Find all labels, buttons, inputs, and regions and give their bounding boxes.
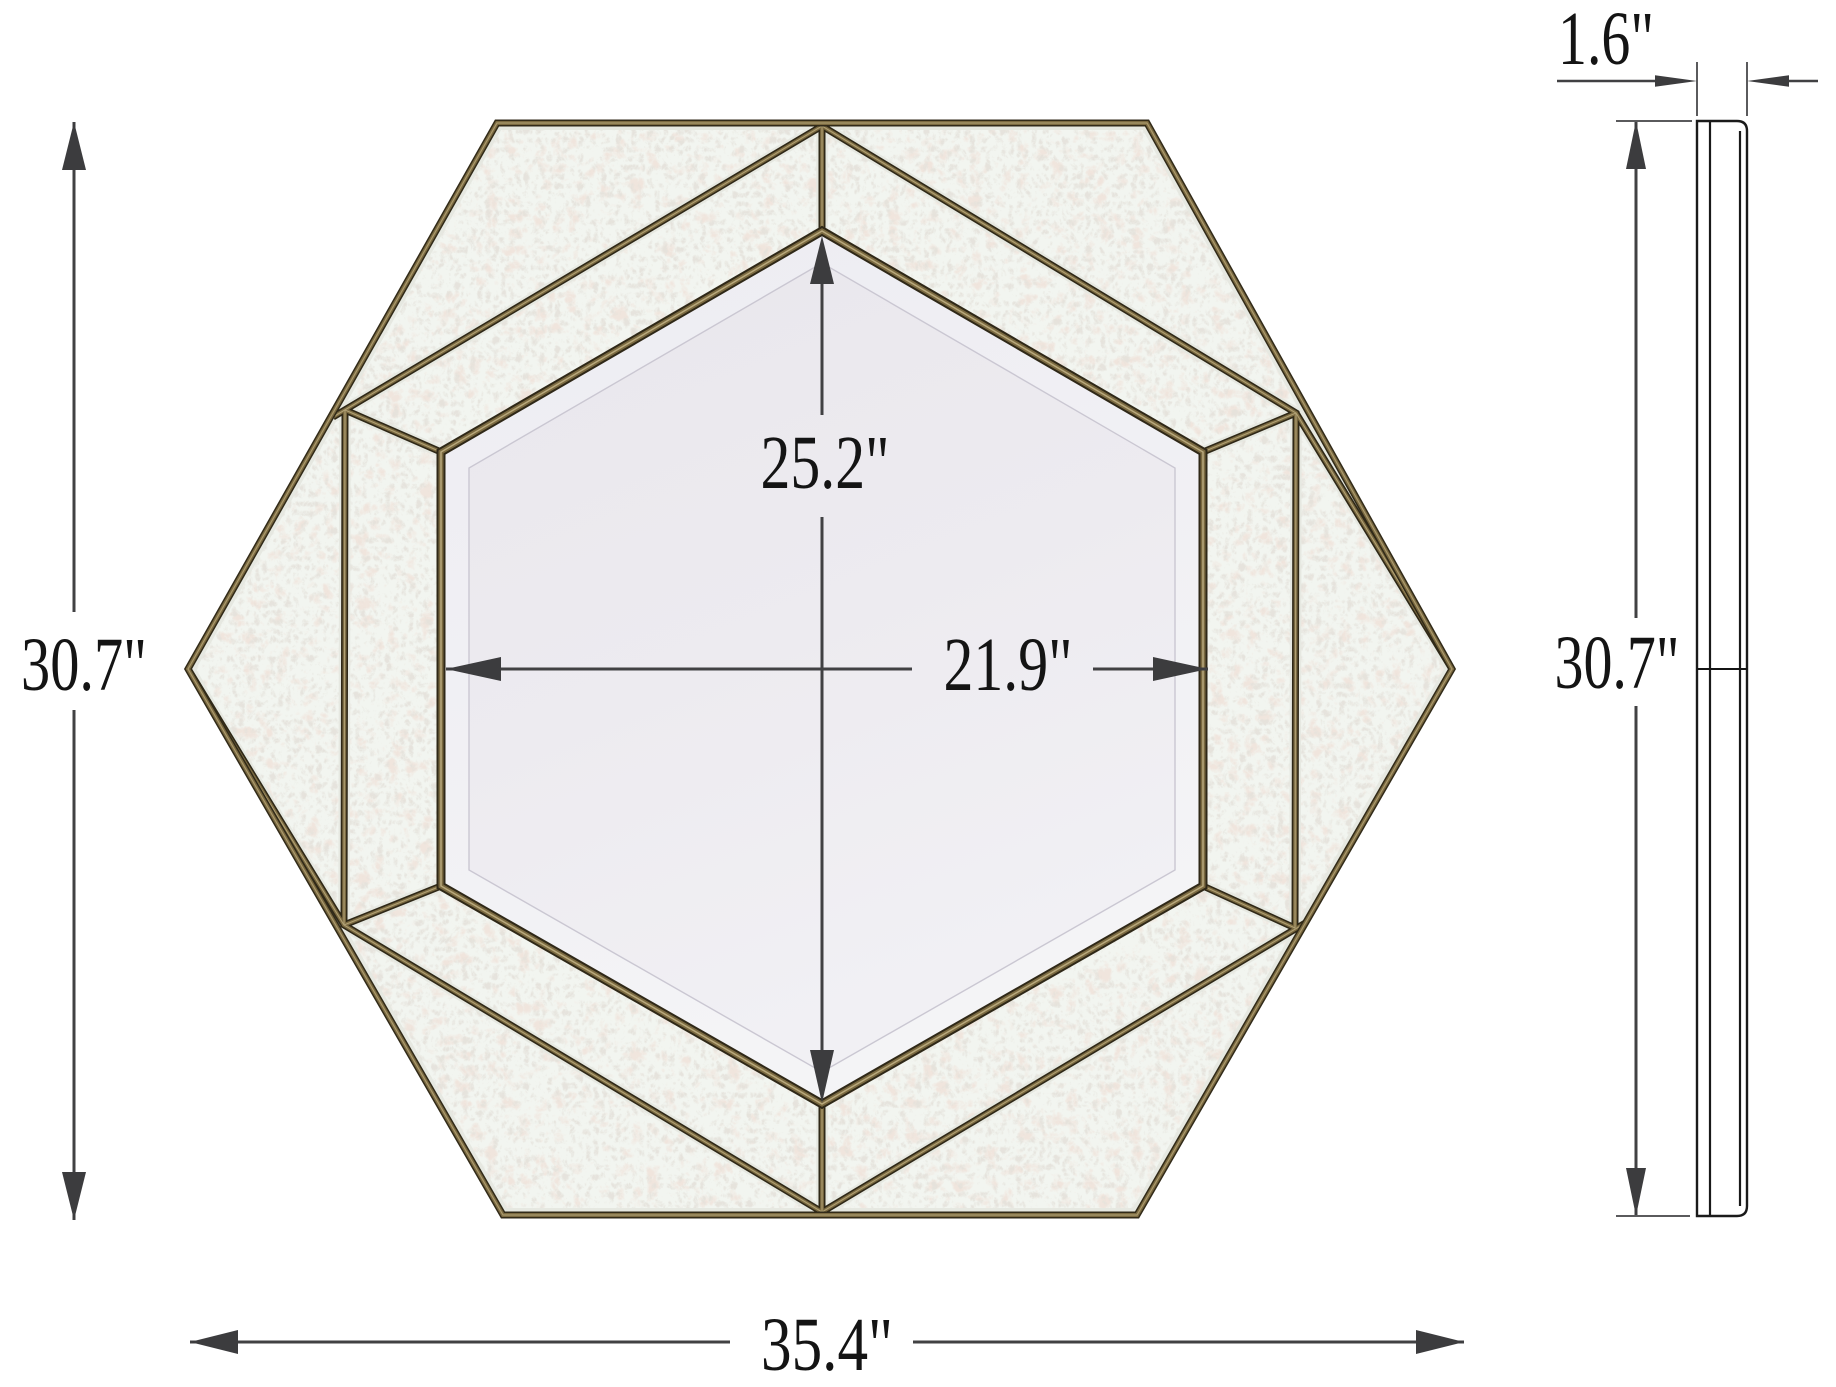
- svg-text:1.6": 1.6": [1558, 0, 1654, 81]
- svg-text:21.9": 21.9": [944, 623, 1073, 707]
- svg-text:30.7": 30.7": [1555, 621, 1680, 705]
- svg-text:30.7": 30.7": [21, 623, 147, 707]
- svg-text:25.2": 25.2": [761, 421, 890, 505]
- svg-text:35.4": 35.4": [761, 1303, 893, 1387]
